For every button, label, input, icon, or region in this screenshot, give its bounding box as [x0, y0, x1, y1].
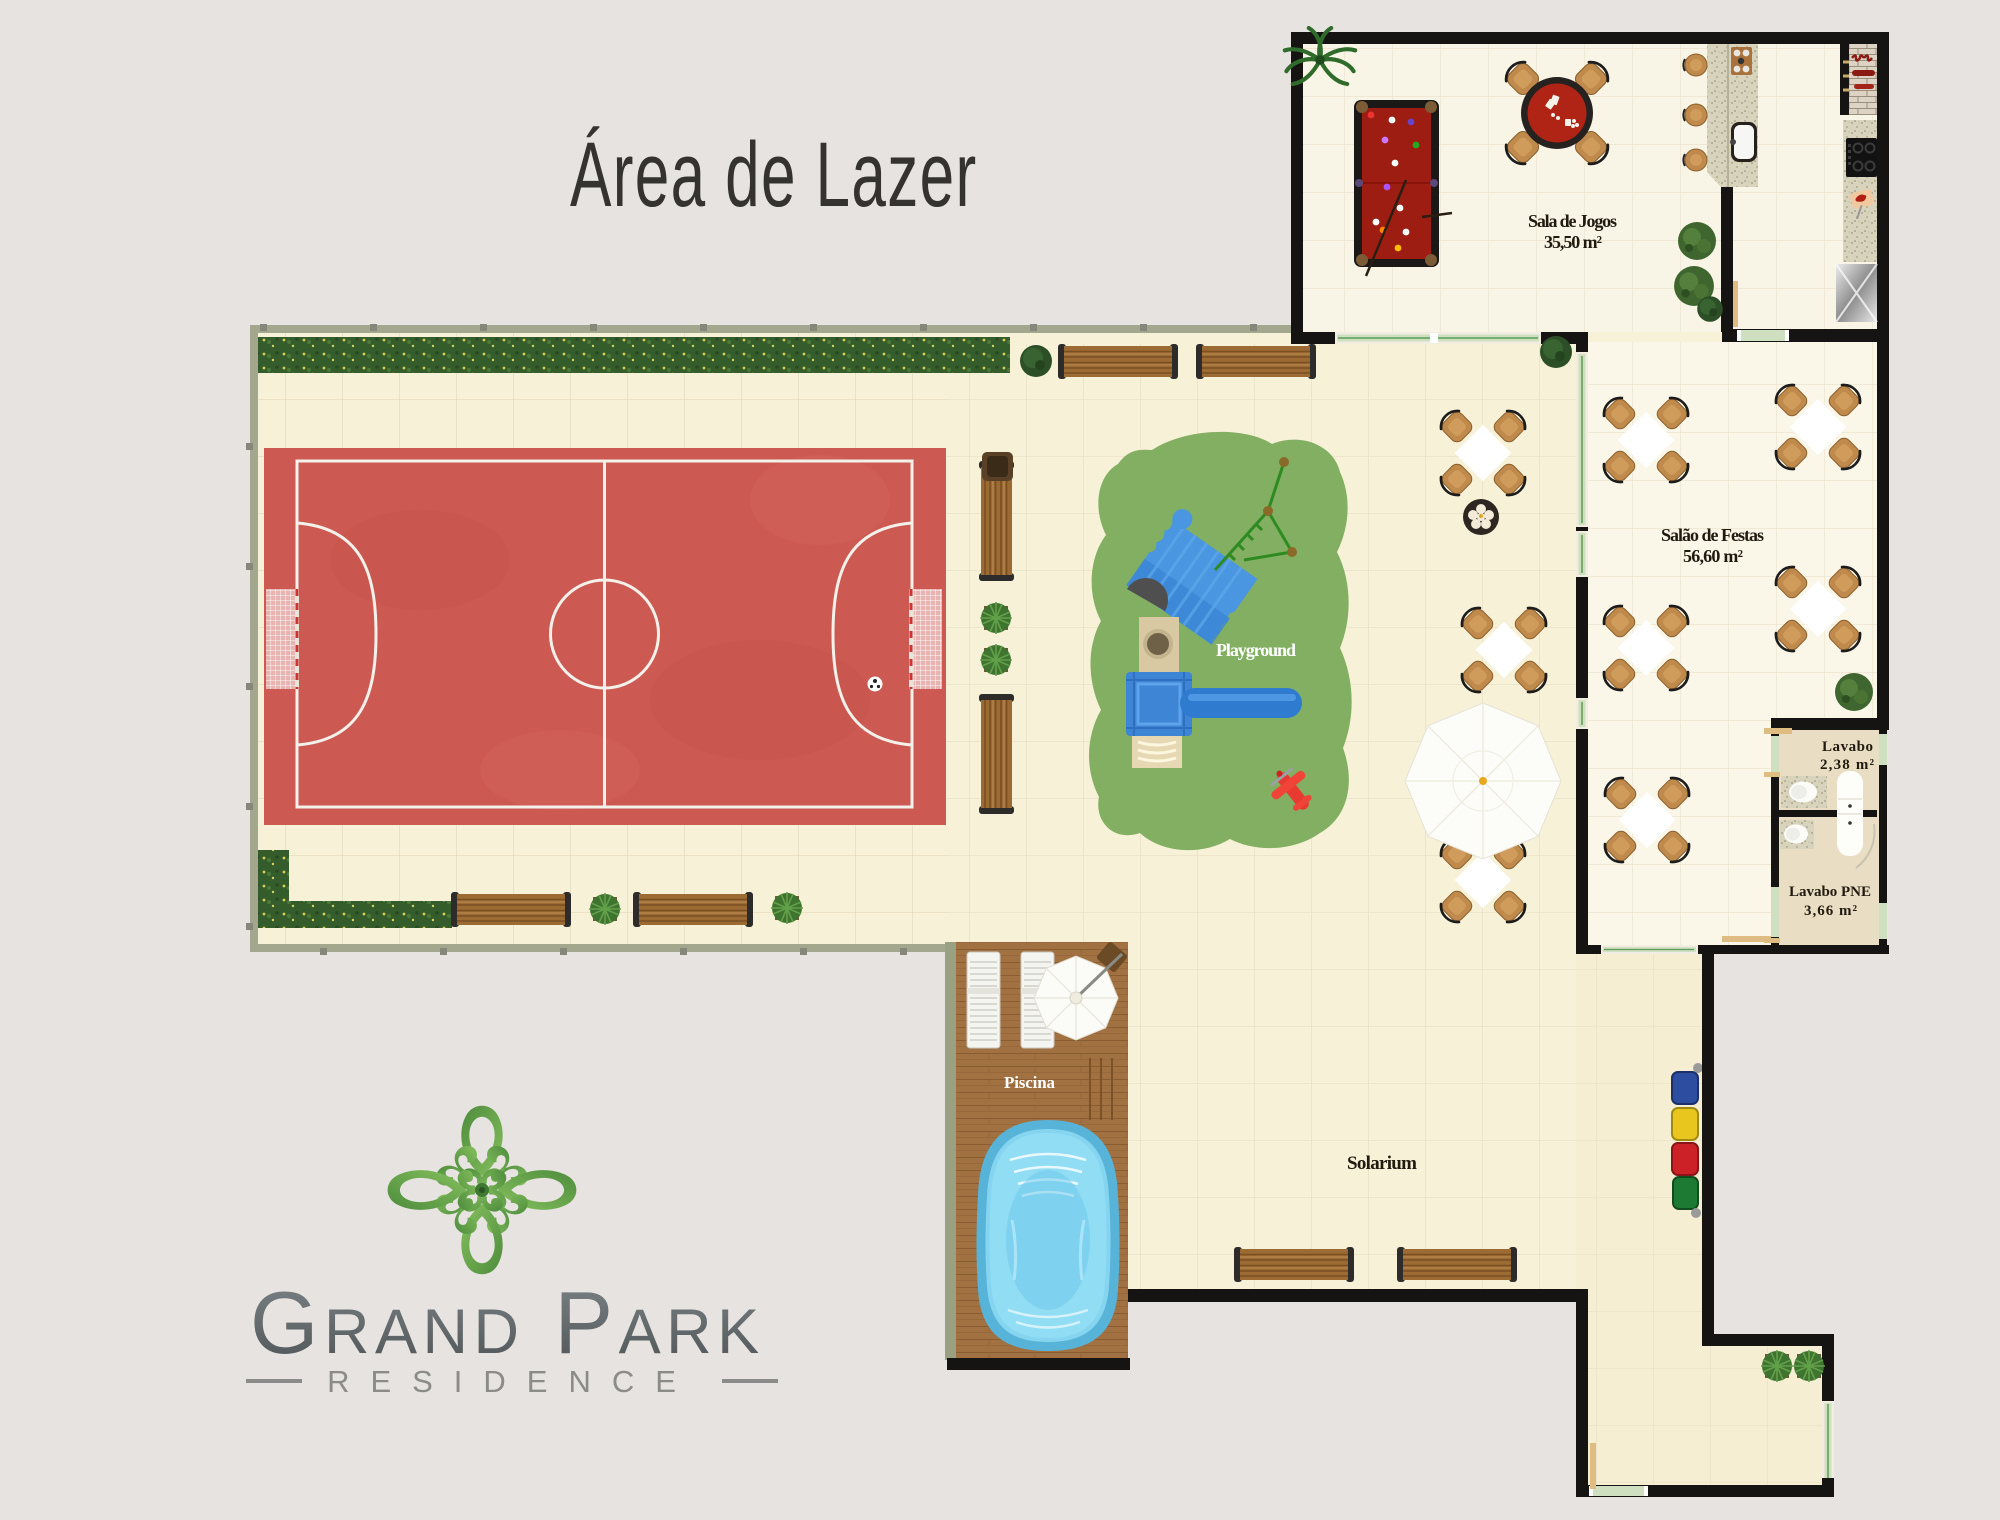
- svg-text:2,38 m²: 2,38 m²: [1820, 757, 1875, 773]
- svg-text:Área de Lazer: Área de Lazer: [570, 123, 978, 226]
- svg-text:Solarium: Solarium: [1347, 1153, 1417, 1174]
- svg-text:RESIDENCE: RESIDENCE: [327, 1364, 697, 1399]
- svg-text:Salão de Festas: Salão de Festas: [1661, 525, 1764, 545]
- svg-text:Lavabo: Lavabo: [1822, 739, 1873, 755]
- svg-text:Piscina: Piscina: [1004, 1073, 1056, 1092]
- svg-text:Sala de Jogos: Sala de Jogos: [1528, 211, 1617, 231]
- svg-text:Playground: Playground: [1216, 640, 1296, 660]
- svg-text:3,66 m²: 3,66 m²: [1804, 903, 1858, 919]
- svg-text:56,60 m²: 56,60 m²: [1683, 546, 1743, 566]
- svg-text:Lavabo PNE: Lavabo PNE: [1789, 884, 1871, 900]
- svg-text:35,50 m²: 35,50 m²: [1544, 232, 1602, 252]
